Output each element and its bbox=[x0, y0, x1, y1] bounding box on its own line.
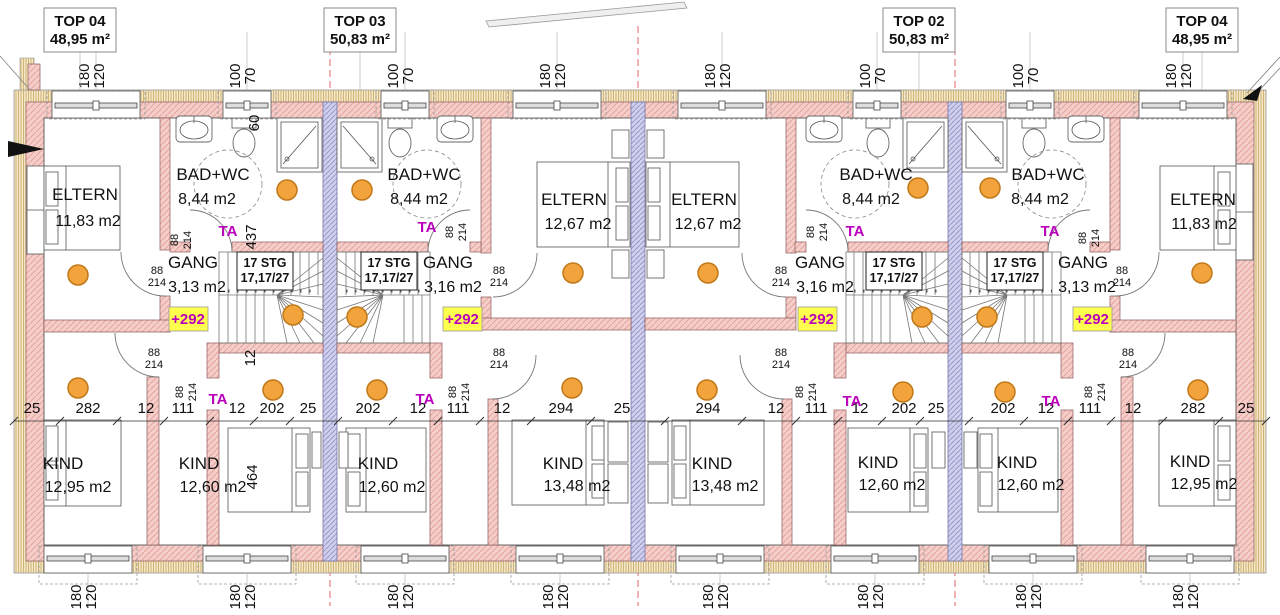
dim-value: 111 bbox=[447, 400, 470, 417]
detector-icon bbox=[68, 378, 88, 398]
detector-icon bbox=[563, 263, 583, 283]
floor-plan-drawing: 180120 10070 10070 180120 180120 10070 1… bbox=[0, 0, 1280, 615]
unit-area: 48,95 m² bbox=[50, 31, 110, 48]
bed bbox=[228, 428, 321, 512]
dim-value: 25 bbox=[300, 400, 317, 417]
room-area: 8,44 m2 bbox=[178, 191, 236, 208]
room-name: GANG bbox=[795, 253, 845, 272]
detector-icon bbox=[562, 378, 582, 398]
door-tag: TA bbox=[219, 223, 238, 240]
window-dim: 70 bbox=[242, 68, 259, 85]
svg-text:88: 88 bbox=[148, 347, 160, 359]
svg-text:214: 214 bbox=[187, 383, 199, 401]
svg-text:88: 88 bbox=[444, 226, 456, 238]
svg-text:88: 88 bbox=[493, 265, 505, 277]
window: 180120 bbox=[1141, 546, 1239, 610]
svg-text:214: 214 bbox=[1096, 383, 1108, 401]
detector-icon bbox=[263, 380, 283, 400]
dim-value: 60 bbox=[246, 115, 263, 132]
room-area: 12,95 m2 bbox=[1171, 476, 1238, 493]
detector-icon bbox=[352, 180, 372, 200]
svg-text:214: 214 bbox=[182, 231, 194, 249]
room-area: 12,67 m2 bbox=[545, 216, 612, 233]
detector-icon bbox=[68, 265, 88, 285]
room-name: GANG bbox=[1058, 253, 1108, 272]
toilet bbox=[866, 118, 890, 157]
detector-icon bbox=[698, 263, 718, 283]
unit-name: TOP 02 bbox=[893, 13, 944, 30]
window-dim: 70 bbox=[400, 68, 417, 85]
detector-icon bbox=[1188, 380, 1208, 400]
dim-value: 111 bbox=[1079, 400, 1102, 417]
unit-area: 48,95 m² bbox=[1172, 31, 1232, 48]
window: 180120 bbox=[984, 546, 1082, 610]
room-name: ELTERN bbox=[1170, 190, 1236, 209]
dim-value: 282 bbox=[1180, 400, 1205, 417]
window: 180120 bbox=[511, 546, 609, 610]
svg-text:214: 214 bbox=[460, 383, 472, 401]
level-marker: +292 bbox=[445, 311, 479, 328]
room-name: BAD+WC bbox=[1011, 165, 1084, 184]
stair-ratio-label: 17,17/27 bbox=[870, 271, 919, 285]
door-tag: TA bbox=[418, 219, 437, 236]
room-area: 3,13 m2 bbox=[1058, 279, 1116, 296]
washbasin bbox=[176, 116, 212, 142]
svg-text:214: 214 bbox=[1119, 359, 1137, 371]
svg-text:214: 214 bbox=[148, 277, 166, 289]
window-dim: 120 bbox=[717, 63, 734, 88]
dim-value: 464 bbox=[244, 464, 261, 489]
room-name: KIND bbox=[692, 454, 733, 473]
dim-value: 12 bbox=[242, 350, 259, 367]
neighbour-roof-edge bbox=[486, 2, 687, 27]
svg-text:88: 88 bbox=[169, 234, 181, 246]
room-area: 8,44 m2 bbox=[1011, 191, 1069, 208]
room-name: GANG bbox=[168, 253, 218, 272]
shower bbox=[337, 118, 382, 172]
room-name: KIND bbox=[43, 454, 84, 473]
washbasin bbox=[1068, 116, 1104, 142]
window: 10070 bbox=[218, 32, 276, 119]
svg-text:214: 214 bbox=[490, 277, 508, 289]
room-name: BAD+WC bbox=[839, 165, 912, 184]
room-area: 3,16 m2 bbox=[796, 279, 854, 296]
dim-value: 25 bbox=[614, 400, 631, 417]
room-area: 3,16 m2 bbox=[424, 279, 482, 296]
side-window-right bbox=[1236, 164, 1253, 260]
svg-text:214: 214 bbox=[490, 359, 508, 371]
dim-value: 25 bbox=[928, 400, 945, 417]
window-dim: 120 bbox=[242, 584, 259, 609]
dim-value: 294 bbox=[548, 400, 573, 417]
svg-text:214: 214 bbox=[145, 359, 163, 371]
svg-text:88: 88 bbox=[1077, 232, 1089, 244]
unit-area: 50,83 m² bbox=[889, 31, 949, 48]
room-name: KIND bbox=[858, 453, 899, 472]
door-tag: TA bbox=[209, 391, 228, 408]
room-area: 12,60 m2 bbox=[359, 479, 426, 496]
door-tag: TA bbox=[843, 393, 862, 410]
room-name: KIND bbox=[358, 454, 399, 473]
room-area: 12,95 m2 bbox=[45, 479, 112, 496]
room-name: BAD+WC bbox=[176, 165, 249, 184]
window: 180120 bbox=[508, 32, 606, 119]
level-marker: +292 bbox=[171, 311, 205, 328]
room-name: KIND bbox=[543, 454, 584, 473]
dim-value: 294 bbox=[695, 400, 720, 417]
window: 180120 bbox=[356, 546, 454, 610]
svg-text:88: 88 bbox=[493, 347, 505, 359]
room-name: ELTERN bbox=[52, 185, 118, 204]
window-dim: 120 bbox=[400, 584, 417, 609]
dim-value: 12 bbox=[138, 400, 155, 417]
door-tag: TA bbox=[1042, 393, 1061, 410]
dim-value: 111 bbox=[172, 400, 195, 417]
dim-value: 25 bbox=[24, 400, 41, 417]
window: 180120 bbox=[826, 546, 924, 610]
window-dim: 120 bbox=[552, 63, 569, 88]
svg-text:88: 88 bbox=[447, 386, 459, 398]
dim-value: 12 bbox=[1125, 400, 1142, 417]
unit-name: TOP 03 bbox=[334, 13, 385, 30]
room-name: ELTERN bbox=[541, 190, 607, 209]
room-name: KIND bbox=[179, 454, 220, 473]
dim-value: 202 bbox=[355, 400, 380, 417]
room-area: 3,13 m2 bbox=[168, 279, 226, 296]
svg-text:88: 88 bbox=[805, 226, 817, 238]
svg-text:214: 214 bbox=[772, 277, 790, 289]
room-area: 13,48 m2 bbox=[692, 478, 759, 495]
window-dim: 120 bbox=[1028, 584, 1045, 609]
unit-name: TOP 04 bbox=[54, 13, 106, 30]
stair-steps-label: 17 STG bbox=[243, 256, 286, 270]
window-dim: 120 bbox=[1178, 63, 1195, 88]
detector-icon bbox=[347, 307, 367, 327]
side-window-left bbox=[27, 166, 44, 254]
dim-value: 202 bbox=[891, 400, 916, 417]
stair-ratio-label: 17,17/27 bbox=[991, 271, 1040, 285]
room-area: 11,83 m2 bbox=[1171, 216, 1237, 233]
dim-value: 282 bbox=[75, 400, 100, 417]
window-dim: 120 bbox=[870, 584, 887, 609]
detector-icon bbox=[697, 380, 717, 400]
room-area: 13,48 m2 bbox=[544, 478, 611, 495]
level-marker: +292 bbox=[1075, 311, 1109, 328]
window-dim: 70 bbox=[872, 68, 889, 85]
room-area: 12,60 m2 bbox=[180, 479, 247, 496]
window: 10070 bbox=[1001, 32, 1059, 119]
stair-ratio-label: 17,17/27 bbox=[241, 271, 290, 285]
detector-icon bbox=[980, 178, 1000, 198]
dim-value: 111 bbox=[805, 400, 828, 417]
room-name: KIND bbox=[1170, 452, 1211, 471]
detector-icon bbox=[367, 380, 387, 400]
unit-area: 50,83 m² bbox=[330, 31, 390, 48]
detector-icon bbox=[277, 180, 297, 200]
detector-icon bbox=[893, 382, 913, 402]
window-dim: 120 bbox=[1185, 584, 1202, 609]
room-name: KIND bbox=[997, 453, 1038, 472]
svg-text:88: 88 bbox=[1122, 347, 1134, 359]
svg-text:214: 214 bbox=[818, 223, 830, 241]
room-area: 8,44 m2 bbox=[842, 191, 900, 208]
dim-value: 202 bbox=[259, 400, 284, 417]
room-name: ELTERN bbox=[671, 190, 737, 209]
door-tag: TA bbox=[416, 391, 435, 408]
detector-icon bbox=[995, 382, 1015, 402]
room-name: BAD+WC bbox=[387, 165, 460, 184]
svg-text:88: 88 bbox=[775, 347, 787, 359]
unit-title-boxes: TOP 04 48,95 m² TOP 03 50,83 m² TOP 02 5… bbox=[44, 8, 1238, 90]
room-area: 8,44 m2 bbox=[390, 191, 448, 208]
window-dim: 70 bbox=[1025, 68, 1042, 85]
shower bbox=[903, 118, 948, 172]
unit-name: TOP 04 bbox=[1176, 13, 1228, 30]
dim-value: 437 bbox=[243, 224, 260, 249]
window: 180120 bbox=[198, 546, 296, 610]
shower bbox=[962, 118, 1007, 172]
toilet bbox=[388, 118, 412, 157]
detector-icon bbox=[1192, 263, 1212, 283]
shower bbox=[277, 118, 322, 172]
detector-icon bbox=[912, 307, 932, 327]
window: 180120 bbox=[671, 546, 769, 610]
svg-text:88: 88 bbox=[1116, 265, 1128, 277]
stair-steps-label: 17 STG bbox=[872, 256, 915, 270]
dim-value: 202 bbox=[990, 400, 1015, 417]
window-dim: 120 bbox=[555, 584, 572, 609]
window: 180120 bbox=[673, 32, 771, 119]
svg-text:214: 214 bbox=[457, 223, 469, 241]
room-area: 12,60 m2 bbox=[998, 477, 1065, 494]
svg-text:214: 214 bbox=[807, 383, 819, 401]
level-marker: +292 bbox=[800, 311, 834, 328]
door-tag: TA bbox=[1041, 223, 1060, 240]
room-name: GANG bbox=[423, 253, 473, 272]
svg-text:214: 214 bbox=[772, 359, 790, 371]
bed bbox=[44, 166, 120, 250]
room-area: 12,67 m2 bbox=[675, 216, 742, 233]
svg-text:88: 88 bbox=[775, 265, 787, 277]
window-dim: 120 bbox=[83, 584, 100, 609]
dim-value: 12 bbox=[768, 400, 785, 417]
washbasin bbox=[437, 116, 473, 142]
window-dim: 120 bbox=[715, 584, 732, 609]
dim-value: 25 bbox=[1238, 400, 1255, 417]
svg-text:88: 88 bbox=[794, 386, 806, 398]
room-area: 11,83 m2 bbox=[55, 213, 121, 230]
svg-text:88: 88 bbox=[174, 386, 186, 398]
washbasin bbox=[806, 116, 842, 142]
stair-steps-label: 17 STG bbox=[367, 256, 410, 270]
door-tag: TA bbox=[846, 223, 865, 240]
stair-ratio-label: 17,17/27 bbox=[365, 271, 414, 285]
dim-value: 12 bbox=[229, 400, 246, 417]
floor-plan-page: 180120 10070 10070 180120 180120 10070 1… bbox=[0, 0, 1280, 615]
window: 180120 bbox=[39, 546, 137, 610]
dim-value: 12 bbox=[494, 400, 511, 417]
detector-icon bbox=[283, 305, 303, 325]
svg-text:88: 88 bbox=[151, 265, 163, 277]
svg-text:214: 214 bbox=[1090, 229, 1102, 247]
detector-icon bbox=[977, 307, 997, 327]
stair-steps-label: 17 STG bbox=[993, 256, 1036, 270]
room-area: 12,60 m2 bbox=[859, 477, 926, 494]
window-dim: 120 bbox=[91, 63, 108, 88]
svg-text:88: 88 bbox=[1083, 386, 1095, 398]
